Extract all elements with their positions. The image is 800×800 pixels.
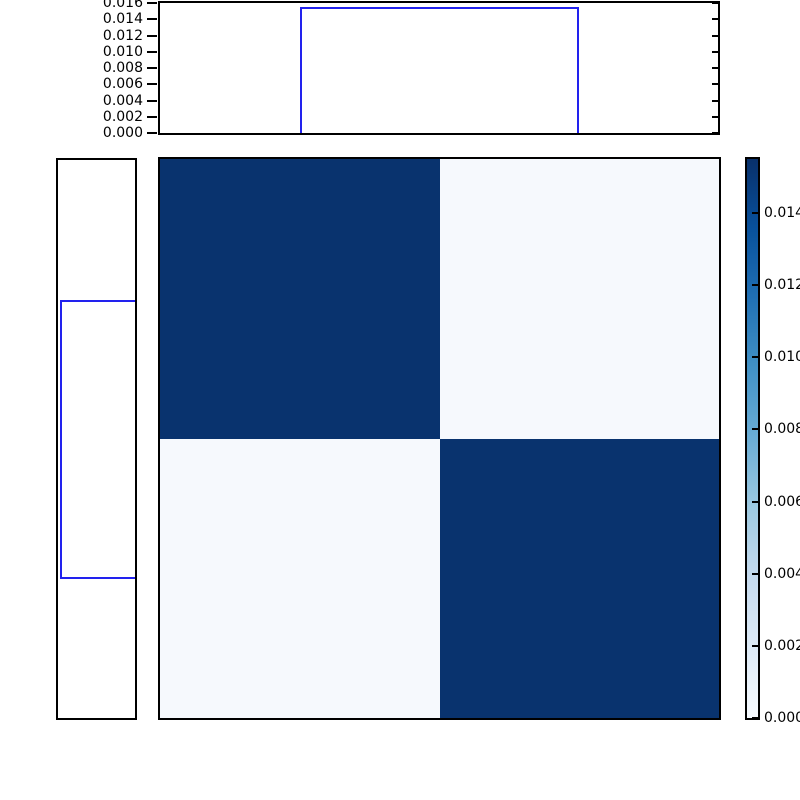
y-axis-tick-label: 0.004 — [58, 92, 143, 110]
heatmap-cell-top-left — [160, 159, 440, 439]
y-axis-tick-left — [147, 83, 157, 85]
y-axis-tick-label: 0.006 — [58, 75, 143, 93]
y-axis-tick-label: 0.010 — [58, 43, 143, 61]
heatmap-cell-bottom-left — [160, 439, 440, 719]
colorbar-tick-label: 0.006 — [764, 493, 800, 511]
heatmap-cell-top-right — [440, 159, 720, 439]
joint-heatmap — [158, 157, 721, 720]
colorbar — [745, 157, 760, 720]
y-axis-tick-label: 0.014 — [58, 10, 143, 28]
y-axis-tick-left — [147, 18, 157, 20]
top-marginal-panel — [158, 1, 720, 135]
y-axis-tick-left — [147, 2, 157, 4]
y-axis-tick-left — [147, 132, 157, 134]
y-axis-tick-label: 0.016 — [58, 0, 143, 12]
top-marginal-pulse — [300, 7, 579, 133]
y-axis-tick-left — [147, 35, 157, 37]
colorbar-tick-label: 0.000 — [764, 709, 800, 727]
colorbar-tick-label: 0.008 — [764, 420, 800, 438]
y-axis-tick-left — [147, 100, 157, 102]
y-axis-tick-label: 0.012 — [58, 27, 143, 45]
y-axis-tick-label: 0.002 — [58, 108, 143, 126]
figure-root: 0.0160.0140.0120.0100.0080.0060.0040.002… — [0, 0, 800, 800]
colorbar-gradient — [747, 159, 758, 718]
left-marginal-pulse — [60, 300, 135, 579]
y-axis-tick-left — [147, 116, 157, 118]
colorbar-tick-label: 0.002 — [764, 637, 800, 655]
colorbar-tick-label: 0.010 — [764, 348, 800, 366]
y-axis-tick-label: 0.000 — [58, 124, 143, 142]
heatmap-cell-bottom-right — [440, 439, 720, 719]
colorbar-tick-label: 0.014 — [764, 204, 800, 222]
y-axis-tick-left — [147, 67, 157, 69]
colorbar-tick-label: 0.004 — [764, 565, 800, 583]
colorbar-tick-label: 0.012 — [764, 276, 800, 294]
left-marginal-panel — [56, 158, 137, 720]
y-axis-tick-label: 0.008 — [58, 59, 143, 77]
y-axis-tick-left — [147, 51, 157, 53]
